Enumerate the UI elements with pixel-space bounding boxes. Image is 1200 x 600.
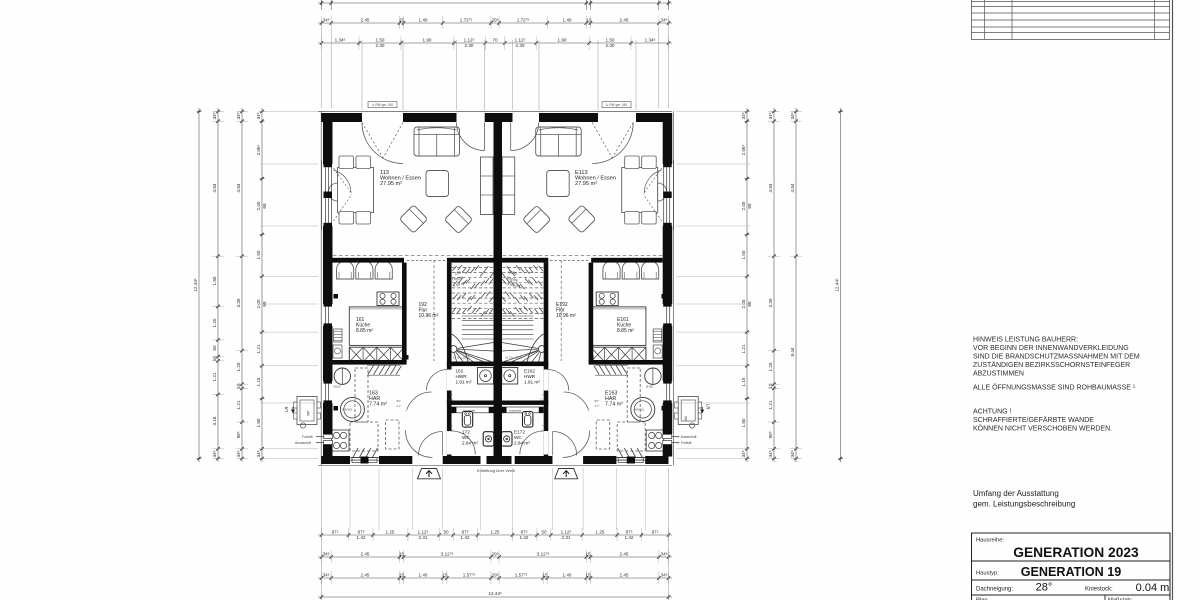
svg-text:1.80: 1.80 <box>256 418 261 427</box>
svg-text:77: 77 <box>450 393 454 397</box>
svg-text:0.04 m: 0.04 m <box>1136 582 1170 594</box>
svg-text:bauseits: bauseits <box>510 408 522 412</box>
svg-text:HWR: HWR <box>524 374 536 379</box>
svg-text:1.15: 1.15 <box>256 377 261 386</box>
svg-text:8.85 m²: 8.85 m² <box>356 328 373 334</box>
svg-text:27.95 m²: 27.95 m² <box>380 181 402 187</box>
svg-text:VOR BEGINN DER INNENWANDVERKLE: VOR BEGINN DER INNENWANDVERKLEIDUNG <box>973 345 1129 352</box>
svg-text:2.1⁴: 2.1⁴ <box>595 404 601 408</box>
svg-text:SCHRAFFIERTE/GEFÄRBTE WANDE: SCHRAFFIERTE/GEFÄRBTE WANDE <box>973 416 1094 424</box>
svg-text:2.1⁴: 2.1⁴ <box>541 429 547 433</box>
svg-text:LR: LR <box>284 407 289 412</box>
svg-text:2.45: 2.45 <box>620 572 629 577</box>
svg-text:16 Stg 18/25: 16 Stg 18/25 <box>505 356 522 360</box>
svg-text:1.80: 1.80 <box>741 418 746 427</box>
svg-text:1.40: 1.40 <box>419 572 428 577</box>
svg-text:4.84: 4.84 <box>236 183 241 192</box>
svg-text:Dachneigung:: Dachneigung: <box>976 587 1013 593</box>
svg-text:2.45: 2.45 <box>361 17 370 22</box>
svg-text:ü. RW ger. 180: ü. RW ger. 180 <box>372 103 393 107</box>
svg-text:GENERATION 2023: GENERATION 2023 <box>1013 545 1139 560</box>
svg-text:HWR: HWR <box>456 374 468 379</box>
svg-text:1.20: 1.20 <box>212 318 217 327</box>
svg-text:27.95 m²: 27.95 m² <box>575 181 597 187</box>
svg-text:ZUSTÄNDIGEN BEZIRKSSCHORNSTEIN: ZUSTÄNDIGEN BEZIRKSSCHORNSTEINFEGER <box>973 361 1130 369</box>
svg-text:WA/WS: WA/WS <box>634 408 644 412</box>
svg-text:Umfang der Ausstattung: Umfang der Ausstattung <box>973 489 1059 498</box>
svg-text:15: 15 <box>768 383 773 389</box>
svg-text:2.30: 2.30 <box>465 43 474 48</box>
svg-text:gem. Leistungsbeschreibung: gem. Leistungsbeschreibung <box>973 500 1075 509</box>
svg-text:2.30: 2.30 <box>376 43 385 48</box>
svg-text:→ Aussenluft: → Aussenluft <box>677 435 697 439</box>
svg-text:1.42: 1.42 <box>520 535 529 540</box>
svg-text:172: 172 <box>462 430 470 435</box>
svg-text:8.44: 8.44 <box>790 347 795 356</box>
svg-text:1.21: 1.21 <box>256 344 261 353</box>
svg-text:1.25: 1.25 <box>491 529 500 534</box>
svg-text:12.442: 12.442 <box>835 278 840 292</box>
svg-text:Aussenluft: Aussenluft <box>295 441 311 445</box>
svg-text:2.30: 2.30 <box>606 43 615 48</box>
svg-text:ACHTUNG !: ACHTUNG ! <box>973 409 1012 416</box>
svg-text:Entlüftung über Ventil: Entlüftung über Ventil <box>477 468 515 473</box>
svg-text:16 Stg 18/25: 16 Stg 18/25 <box>453 356 470 360</box>
svg-text:2.31: 2.31 <box>562 535 571 540</box>
svg-text:→ Fortluft: → Fortluft <box>677 441 692 445</box>
svg-text:4.84: 4.84 <box>212 183 217 192</box>
svg-text:GENERATION 19: GENERATION 19 <box>1021 565 1122 579</box>
svg-text:77: 77 <box>450 424 454 428</box>
svg-text:1.80: 1.80 <box>212 276 217 285</box>
svg-text:2.84 m²: 2.84 m² <box>462 441 478 446</box>
svg-text:WA/WS: WA/WS <box>342 408 352 412</box>
svg-text:68: 68 <box>747 203 752 209</box>
svg-text:Ø150: Ø150 <box>646 385 653 389</box>
svg-text:WP: WP <box>307 410 311 416</box>
svg-text:2.30: 2.30 <box>516 43 525 48</box>
svg-text:1.20: 1.20 <box>236 362 241 371</box>
svg-text:1.25: 1.25 <box>386 529 395 534</box>
svg-text:1.91 m²: 1.91 m² <box>456 380 472 385</box>
svg-text:1.91 m²: 1.91 m² <box>524 380 540 385</box>
svg-text:10.96 m²: 10.96 m² <box>419 313 439 319</box>
svg-text:ü. RW ger. 180: ü. RW ger. 180 <box>606 103 627 107</box>
svg-text:2.1⁴: 2.1⁴ <box>541 398 547 402</box>
svg-text:15: 15 <box>442 572 448 577</box>
svg-text:ABZUSTIMMEN: ABZUSTIMMEN <box>973 371 1024 378</box>
svg-text:1.20: 1.20 <box>768 362 773 371</box>
svg-text:E162: E162 <box>524 369 535 374</box>
svg-text:1.42: 1.42 <box>625 535 634 540</box>
svg-text:50: 50 <box>541 529 547 534</box>
svg-text:50: 50 <box>443 529 449 534</box>
svg-text:7.74 m²: 7.74 m² <box>605 402 623 408</box>
svg-text:3.39: 3.39 <box>768 298 773 307</box>
svg-text:E172: E172 <box>514 430 525 435</box>
svg-text:ALLE ÖFFNUNGSMASSE SIND ROHBAU: ALLE ÖFFNUNGSMASSE SIND ROHBAUMASSE ¹ <box>973 384 1136 392</box>
svg-text:4.84: 4.84 <box>790 183 795 192</box>
svg-text:3.39: 3.39 <box>236 298 241 307</box>
svg-text:2.45: 2.45 <box>620 17 629 22</box>
svg-text:2.84 m²: 2.84 m² <box>514 441 530 446</box>
svg-text:WP: WP <box>684 416 688 422</box>
svg-text:bauseits: bauseits <box>464 408 476 412</box>
svg-text:162: 162 <box>456 369 464 374</box>
svg-text:77: 77 <box>542 424 546 428</box>
svg-text:2.1⁴: 2.1⁴ <box>397 404 403 408</box>
svg-text:HINWEIS LEISTUNG BAUHERR:: HINWEIS LEISTUNG BAUHERR: <box>973 337 1078 344</box>
svg-text:1.15: 1.15 <box>741 377 746 386</box>
svg-text:1.50: 1.50 <box>376 37 385 42</box>
svg-text:1.25: 1.25 <box>596 529 605 534</box>
svg-text:Haustyp:: Haustyp: <box>976 571 999 577</box>
svg-text:WC: WC <box>462 435 470 440</box>
svg-text:2.31: 2.31 <box>419 535 428 540</box>
svg-text:12.442: 12.442 <box>488 591 502 596</box>
svg-text:KÖNNEN NICHT VERSCHOBEN WERDEN: KÖNNEN NICHT VERSCHOBEN WERDEN. <box>973 425 1112 433</box>
svg-text:3.16: 3.16 <box>212 416 217 425</box>
svg-text:70: 70 <box>492 37 498 42</box>
svg-text:2.1⁴: 2.1⁴ <box>449 398 455 402</box>
svg-text:1.90: 1.90 <box>423 37 432 42</box>
svg-text:68: 68 <box>262 203 267 209</box>
svg-text:1.42: 1.42 <box>461 535 470 540</box>
svg-text:WC: WC <box>514 435 522 440</box>
svg-text:Ø150: Ø150 <box>334 385 341 389</box>
svg-text:15: 15 <box>586 17 592 22</box>
svg-text:8.85 m²: 8.85 m² <box>617 328 634 334</box>
svg-text:1.40: 1.40 <box>419 17 428 22</box>
svg-text:2.00: 2.00 <box>741 201 746 210</box>
svg-text:1.21: 1.21 <box>212 372 217 381</box>
svg-text:1.90: 1.90 <box>558 37 567 42</box>
svg-text:2.00: 2.00 <box>256 201 261 210</box>
svg-text:LR: LR <box>706 404 711 409</box>
svg-text:7.74 m²: 7.74 m² <box>369 402 387 408</box>
svg-text:15: 15 <box>236 383 241 389</box>
svg-text:77: 77 <box>542 393 546 397</box>
svg-text:1.42: 1.42 <box>357 535 366 540</box>
svg-text:28°: 28° <box>1036 582 1053 594</box>
svg-text:1.50: 1.50 <box>256 250 261 259</box>
svg-text:SIND DIE BRANDSCHUTZMASSNAHMEN: SIND DIE BRANDSCHUTZMASSNAHMEN MIT DEM <box>973 354 1140 361</box>
svg-text:2.45: 2.45 <box>361 551 370 556</box>
svg-text:Kniestock:: Kniestock: <box>1085 587 1113 593</box>
svg-text:2.1⁴: 2.1⁴ <box>449 429 455 433</box>
svg-text:4.84: 4.84 <box>768 183 773 192</box>
svg-text:1.50: 1.50 <box>606 37 615 42</box>
svg-text:1.21: 1.21 <box>768 400 773 409</box>
svg-text:60: 60 <box>212 345 217 351</box>
svg-text:12.442: 12.442 <box>193 278 198 292</box>
svg-text:Fortluft: Fortluft <box>302 435 313 439</box>
svg-text:1.40: 1.40 <box>563 17 572 22</box>
svg-text:1.40: 1.40 <box>563 572 572 577</box>
svg-text:1.21: 1.21 <box>236 400 241 409</box>
svg-text:1.50: 1.50 <box>741 250 746 259</box>
svg-text:2.45: 2.45 <box>361 572 370 577</box>
svg-text:10.96 m²: 10.96 m² <box>556 313 576 319</box>
svg-text:Hausreihe:: Hausreihe: <box>976 538 1004 544</box>
svg-text:2.45: 2.45 <box>620 551 629 556</box>
svg-text:1.21: 1.21 <box>741 344 746 353</box>
